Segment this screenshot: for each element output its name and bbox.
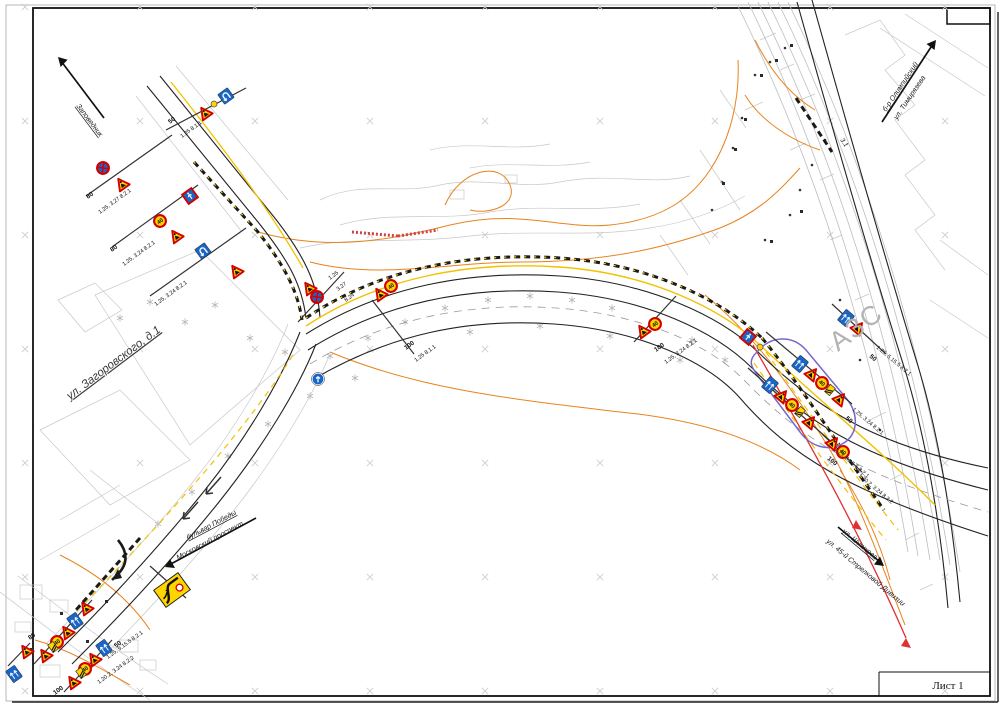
pole-dot	[799, 189, 802, 192]
signal-lamp-icon	[757, 344, 763, 350]
pole-dot	[839, 299, 842, 302]
pole-dot	[811, 164, 814, 167]
sheet-frame: Лист 1	[6, 5, 998, 702]
pole-dot	[859, 359, 862, 362]
mandatory-direction-sign-icon	[312, 373, 325, 386]
pole-dot	[769, 61, 772, 64]
pole-dot	[784, 47, 787, 50]
drawing-sheet: 40	[0, 0, 1000, 707]
signal-lamp-icon	[211, 101, 217, 107]
pole-dot	[732, 147, 735, 150]
site-plan: 40	[0, 0, 1000, 707]
pole-dot	[754, 74, 757, 77]
pole-dot	[789, 214, 792, 217]
pole-dot	[764, 239, 767, 242]
pole-dot	[741, 117, 744, 120]
sheet-label: Лист 1	[932, 680, 963, 692]
